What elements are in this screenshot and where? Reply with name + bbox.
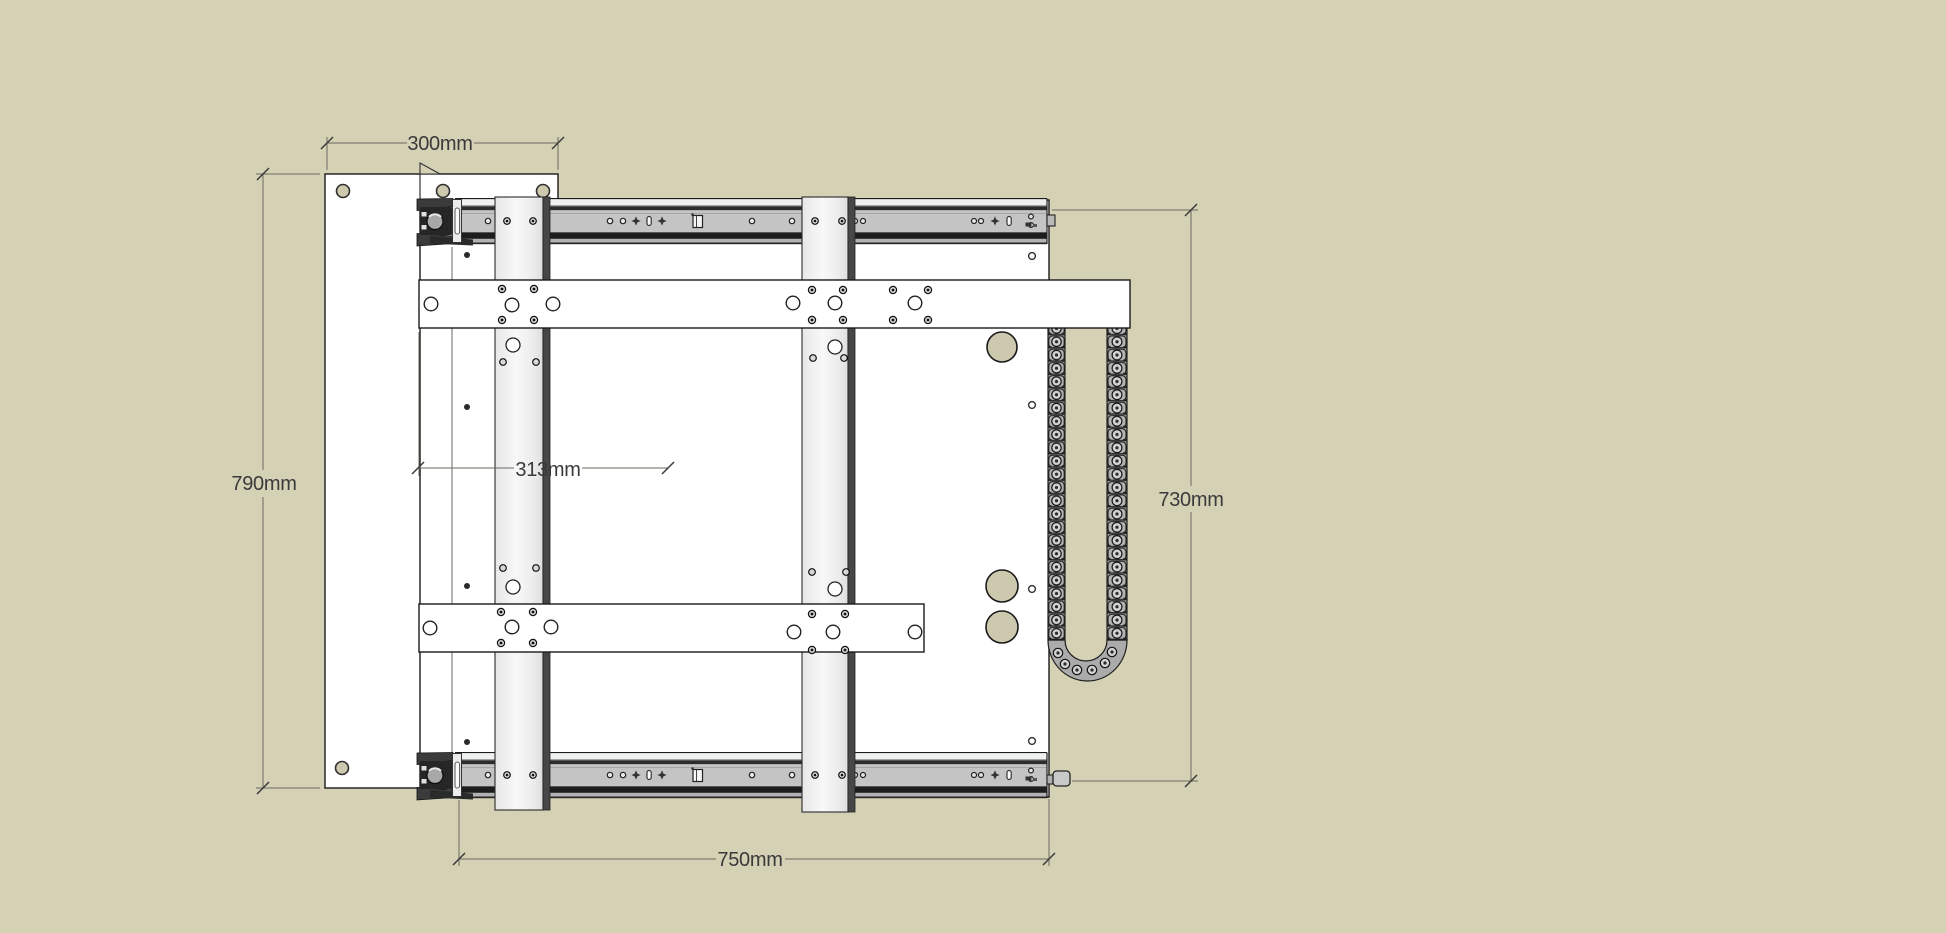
dimension-label-panel-height: 790mm — [231, 473, 296, 495]
cad-viewport[interactable]: 300mm 790mm 313mm 730mm 750mm — [0, 0, 1946, 933]
chain-column-left — [1048, 322, 1065, 640]
dimension-label-center-offset: 313mm — [515, 459, 580, 481]
slide-end-tab — [1047, 215, 1055, 226]
dimension-label-right-height: 730mm — [1158, 489, 1223, 511]
cross-bar-lower — [419, 604, 924, 654]
dimension-label-panel-width: 300mm — [407, 133, 472, 155]
chain-column-right — [1107, 322, 1127, 640]
cross-bar-upper — [419, 280, 1130, 328]
dimension-label-slide-length: 750mm — [717, 849, 782, 871]
